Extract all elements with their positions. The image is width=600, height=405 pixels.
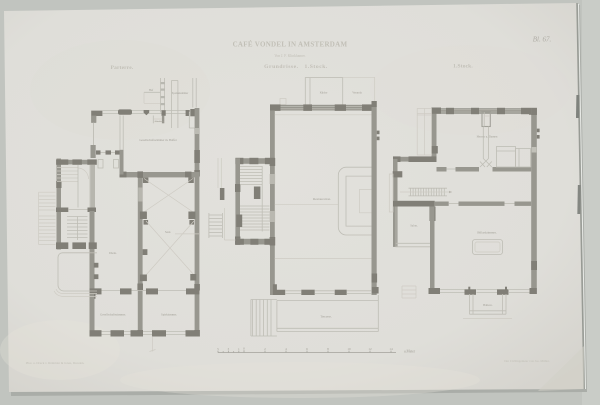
svg-text:10: 10 bbox=[347, 347, 351, 351]
svg-text:Von J. F. Klinkhamer.: Von J. F. Klinkhamer. bbox=[274, 54, 305, 58]
svg-text:3: 3 bbox=[228, 347, 230, 351]
svg-text:Der Civilingenieur von Jos. Mü: Der Civilingenieur von Jos. Müller. bbox=[504, 359, 550, 363]
svg-text:Herren u. Damen: Herren u. Damen bbox=[477, 135, 498, 139]
svg-text:Spielzimmer.: Spielzimmer. bbox=[161, 313, 177, 317]
svg-text:Grundrisse. 1.Stock.: Grundrisse. 1.Stock. bbox=[264, 64, 328, 70]
svg-text:Speisekammer: Speisekammer bbox=[172, 92, 189, 95]
svg-text:CAFÉ VONDEL IN AMSTERDAM: CAFÉ VONDEL IN AMSTERDAM bbox=[233, 40, 348, 48]
svg-text:Saal.: Saal. bbox=[165, 230, 171, 234]
svg-text:Balkon.: Balkon. bbox=[483, 303, 493, 307]
svg-text:8: 8 bbox=[327, 347, 329, 351]
svg-text:a.Meter: a.Meter bbox=[404, 349, 416, 353]
svg-text:1: 1 bbox=[238, 347, 240, 351]
svg-text:Diele.: Diele. bbox=[109, 251, 117, 255]
svg-text:Parterre.: Parterre. bbox=[111, 65, 134, 71]
svg-text:Gesellschaftszimmer m. Buffet: Gesellschaftszimmer m. Buffet bbox=[139, 138, 177, 142]
svg-text:2: 2 bbox=[264, 347, 266, 351]
svg-text:Windfang: Windfang bbox=[155, 120, 165, 123]
svg-text:14: 14 bbox=[389, 347, 393, 351]
svg-text:Veranda: Veranda bbox=[352, 91, 362, 95]
svg-text:Salon.: Salon. bbox=[410, 224, 418, 228]
svg-text:Billardzimmer.: Billardzimmer. bbox=[477, 231, 497, 235]
svg-text:Küche: Küche bbox=[320, 91, 328, 95]
svg-text:1.Stock.: 1.Stock. bbox=[453, 64, 473, 70]
svg-text:Hof: Hof bbox=[149, 89, 153, 92]
svg-text:Restauration.: Restauration. bbox=[313, 197, 331, 201]
svg-text:Bl. 67.: Bl. 67. bbox=[533, 36, 552, 44]
svg-text:4: 4 bbox=[285, 347, 287, 351]
svg-text:6: 6 bbox=[306, 347, 308, 351]
svg-text:5: 5 bbox=[217, 347, 219, 351]
svg-text:12: 12 bbox=[368, 347, 372, 351]
svg-text:Gesellschaftszimmer.: Gesellschaftszimmer. bbox=[100, 313, 126, 317]
svg-text:0: 0 bbox=[243, 347, 245, 351]
svg-text:Terrasse.: Terrasse. bbox=[320, 315, 332, 319]
